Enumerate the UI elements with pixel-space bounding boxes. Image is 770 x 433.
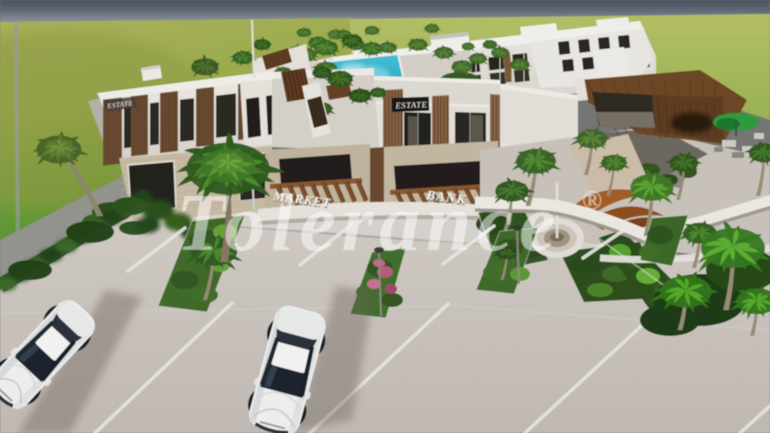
svg-text:Tolerance: Tolerance: [176, 177, 561, 268]
svg-text:®: ®: [582, 185, 602, 215]
